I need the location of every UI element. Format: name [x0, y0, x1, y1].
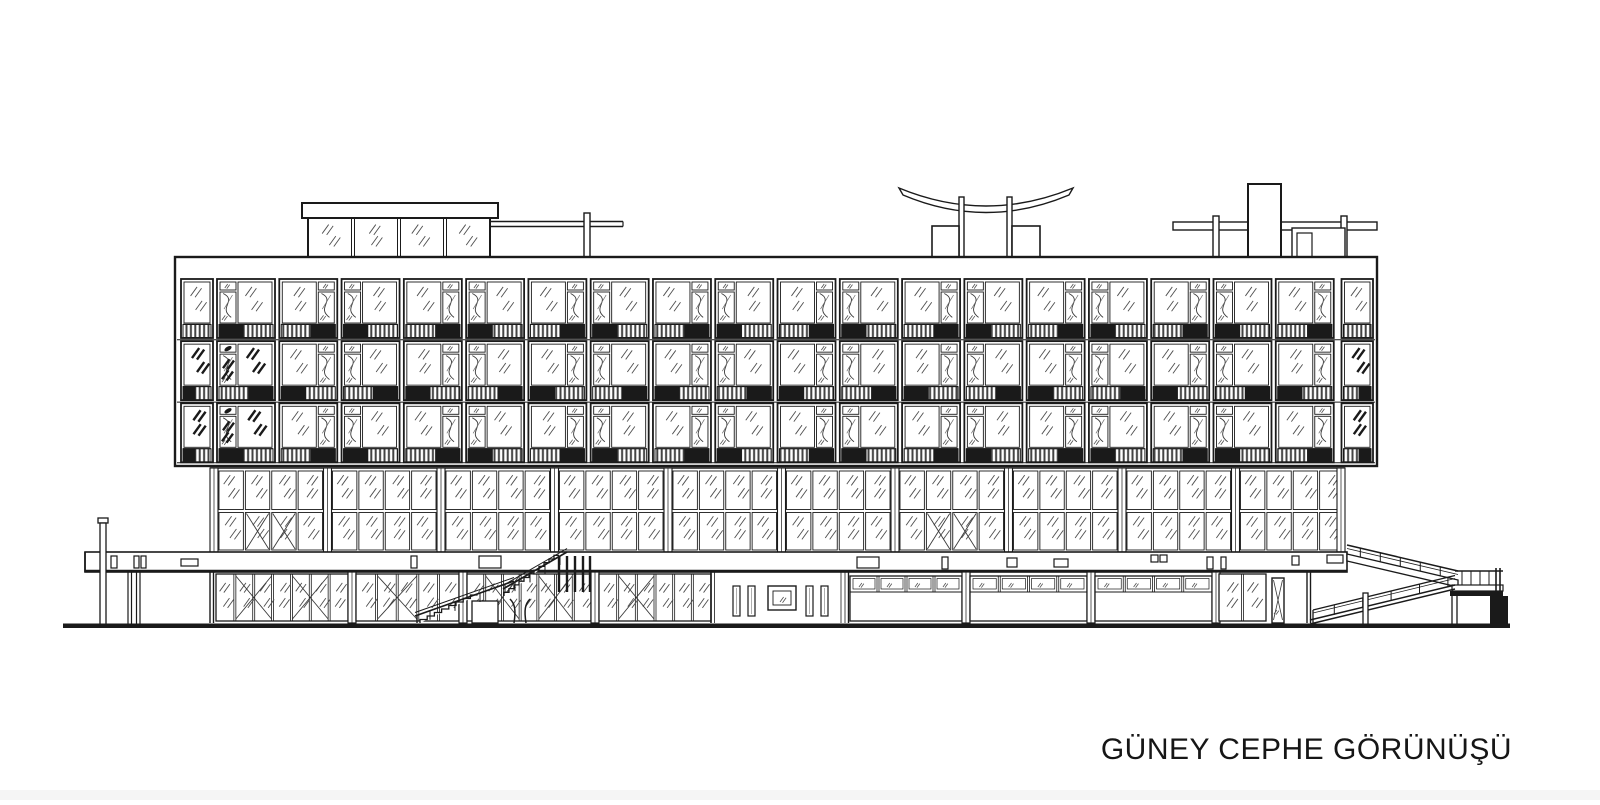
elevation-sheet: GÜNEY CEPHE GÖRÜNÜŞÜ	[0, 0, 1600, 800]
page-bottom-edge	[0, 790, 1600, 800]
upper-floors-block	[175, 257, 1377, 466]
drawing-title: GÜNEY CEPHE GÖRÜNÜŞÜ	[1101, 733, 1512, 767]
first-floor-slab	[85, 552, 1347, 572]
south-elevation-drawing	[0, 0, 1600, 800]
ground-plane	[63, 624, 1510, 629]
elevation-svg	[0, 0, 1600, 800]
